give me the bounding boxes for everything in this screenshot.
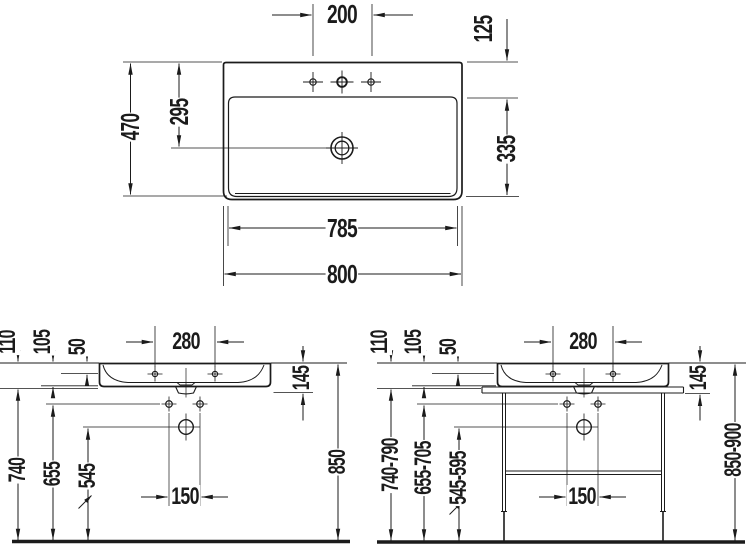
drain-outlet-wall bbox=[172, 414, 200, 441]
fixing-holes-console bbox=[560, 397, 606, 412]
dim-overall-depth: 470 bbox=[117, 112, 143, 141]
deck-holes-wall bbox=[148, 367, 223, 382]
fixing-holes-wall bbox=[162, 397, 208, 412]
plan-view-linework bbox=[123, 4, 519, 286]
dim-bowl-depth: 335 bbox=[493, 134, 519, 163]
dim-console-fixing-height: 655-705 bbox=[412, 440, 436, 496]
faucet-holes bbox=[303, 71, 381, 94]
dim-faucet-hole-spacing: 200 bbox=[326, 1, 359, 27]
dim-console-rim-height: 850-900 bbox=[722, 422, 746, 478]
dim-wall-fixing-height: 655 bbox=[41, 460, 65, 487]
drain-outlet-console bbox=[570, 414, 598, 441]
dim-console-underside-height: 740-790 bbox=[379, 437, 403, 493]
dim-wall-rim-to-line-a: 110 bbox=[0, 329, 20, 355]
dim-wall-underside-height: 740 bbox=[6, 456, 30, 483]
dim-rear-ledge-depth: 125 bbox=[470, 14, 496, 43]
dim-rear-to-drain: 295 bbox=[166, 97, 192, 126]
dim-wall-rim-height: 850 bbox=[326, 448, 350, 475]
technical-drawing-page: 200 125 470 295 335 785 800 280 110 105 … bbox=[0, 0, 747, 547]
dim-console-deck-hole-spacing: 280 bbox=[568, 330, 598, 354]
dim-console-basin-height: 145 bbox=[687, 364, 711, 391]
dim-console-rim-to-line-b: 105 bbox=[402, 328, 426, 355]
dim-console-drain-height: 545-595 bbox=[447, 450, 471, 506]
deck-holes-console bbox=[546, 367, 621, 382]
dim-console-rim-to-line-c: 50 bbox=[437, 338, 461, 357]
dim-wall-deck-hole-spacing: 280 bbox=[171, 330, 201, 354]
console-view-linework bbox=[377, 326, 746, 542]
dim-overall-width: 800 bbox=[326, 261, 359, 287]
dim-wall-rim-to-line-c: 50 bbox=[66, 338, 90, 357]
metal-console-frame bbox=[482, 387, 684, 541]
dim-lower-width: 785 bbox=[326, 215, 359, 241]
drain-symbol-plan bbox=[326, 132, 358, 164]
technical-drawing-linework bbox=[0, 0, 747, 547]
dim-wall-fixing-spacing: 150 bbox=[170, 485, 200, 509]
dim-console-rim-to-line-a: 110 bbox=[368, 329, 392, 355]
dim-console-fixing-spacing: 150 bbox=[567, 485, 597, 509]
dim-wall-rim-to-line-b: 105 bbox=[31, 328, 55, 355]
dim-wall-basin-height: 145 bbox=[290, 364, 314, 391]
dim-wall-drain-height: 545 bbox=[76, 462, 100, 489]
